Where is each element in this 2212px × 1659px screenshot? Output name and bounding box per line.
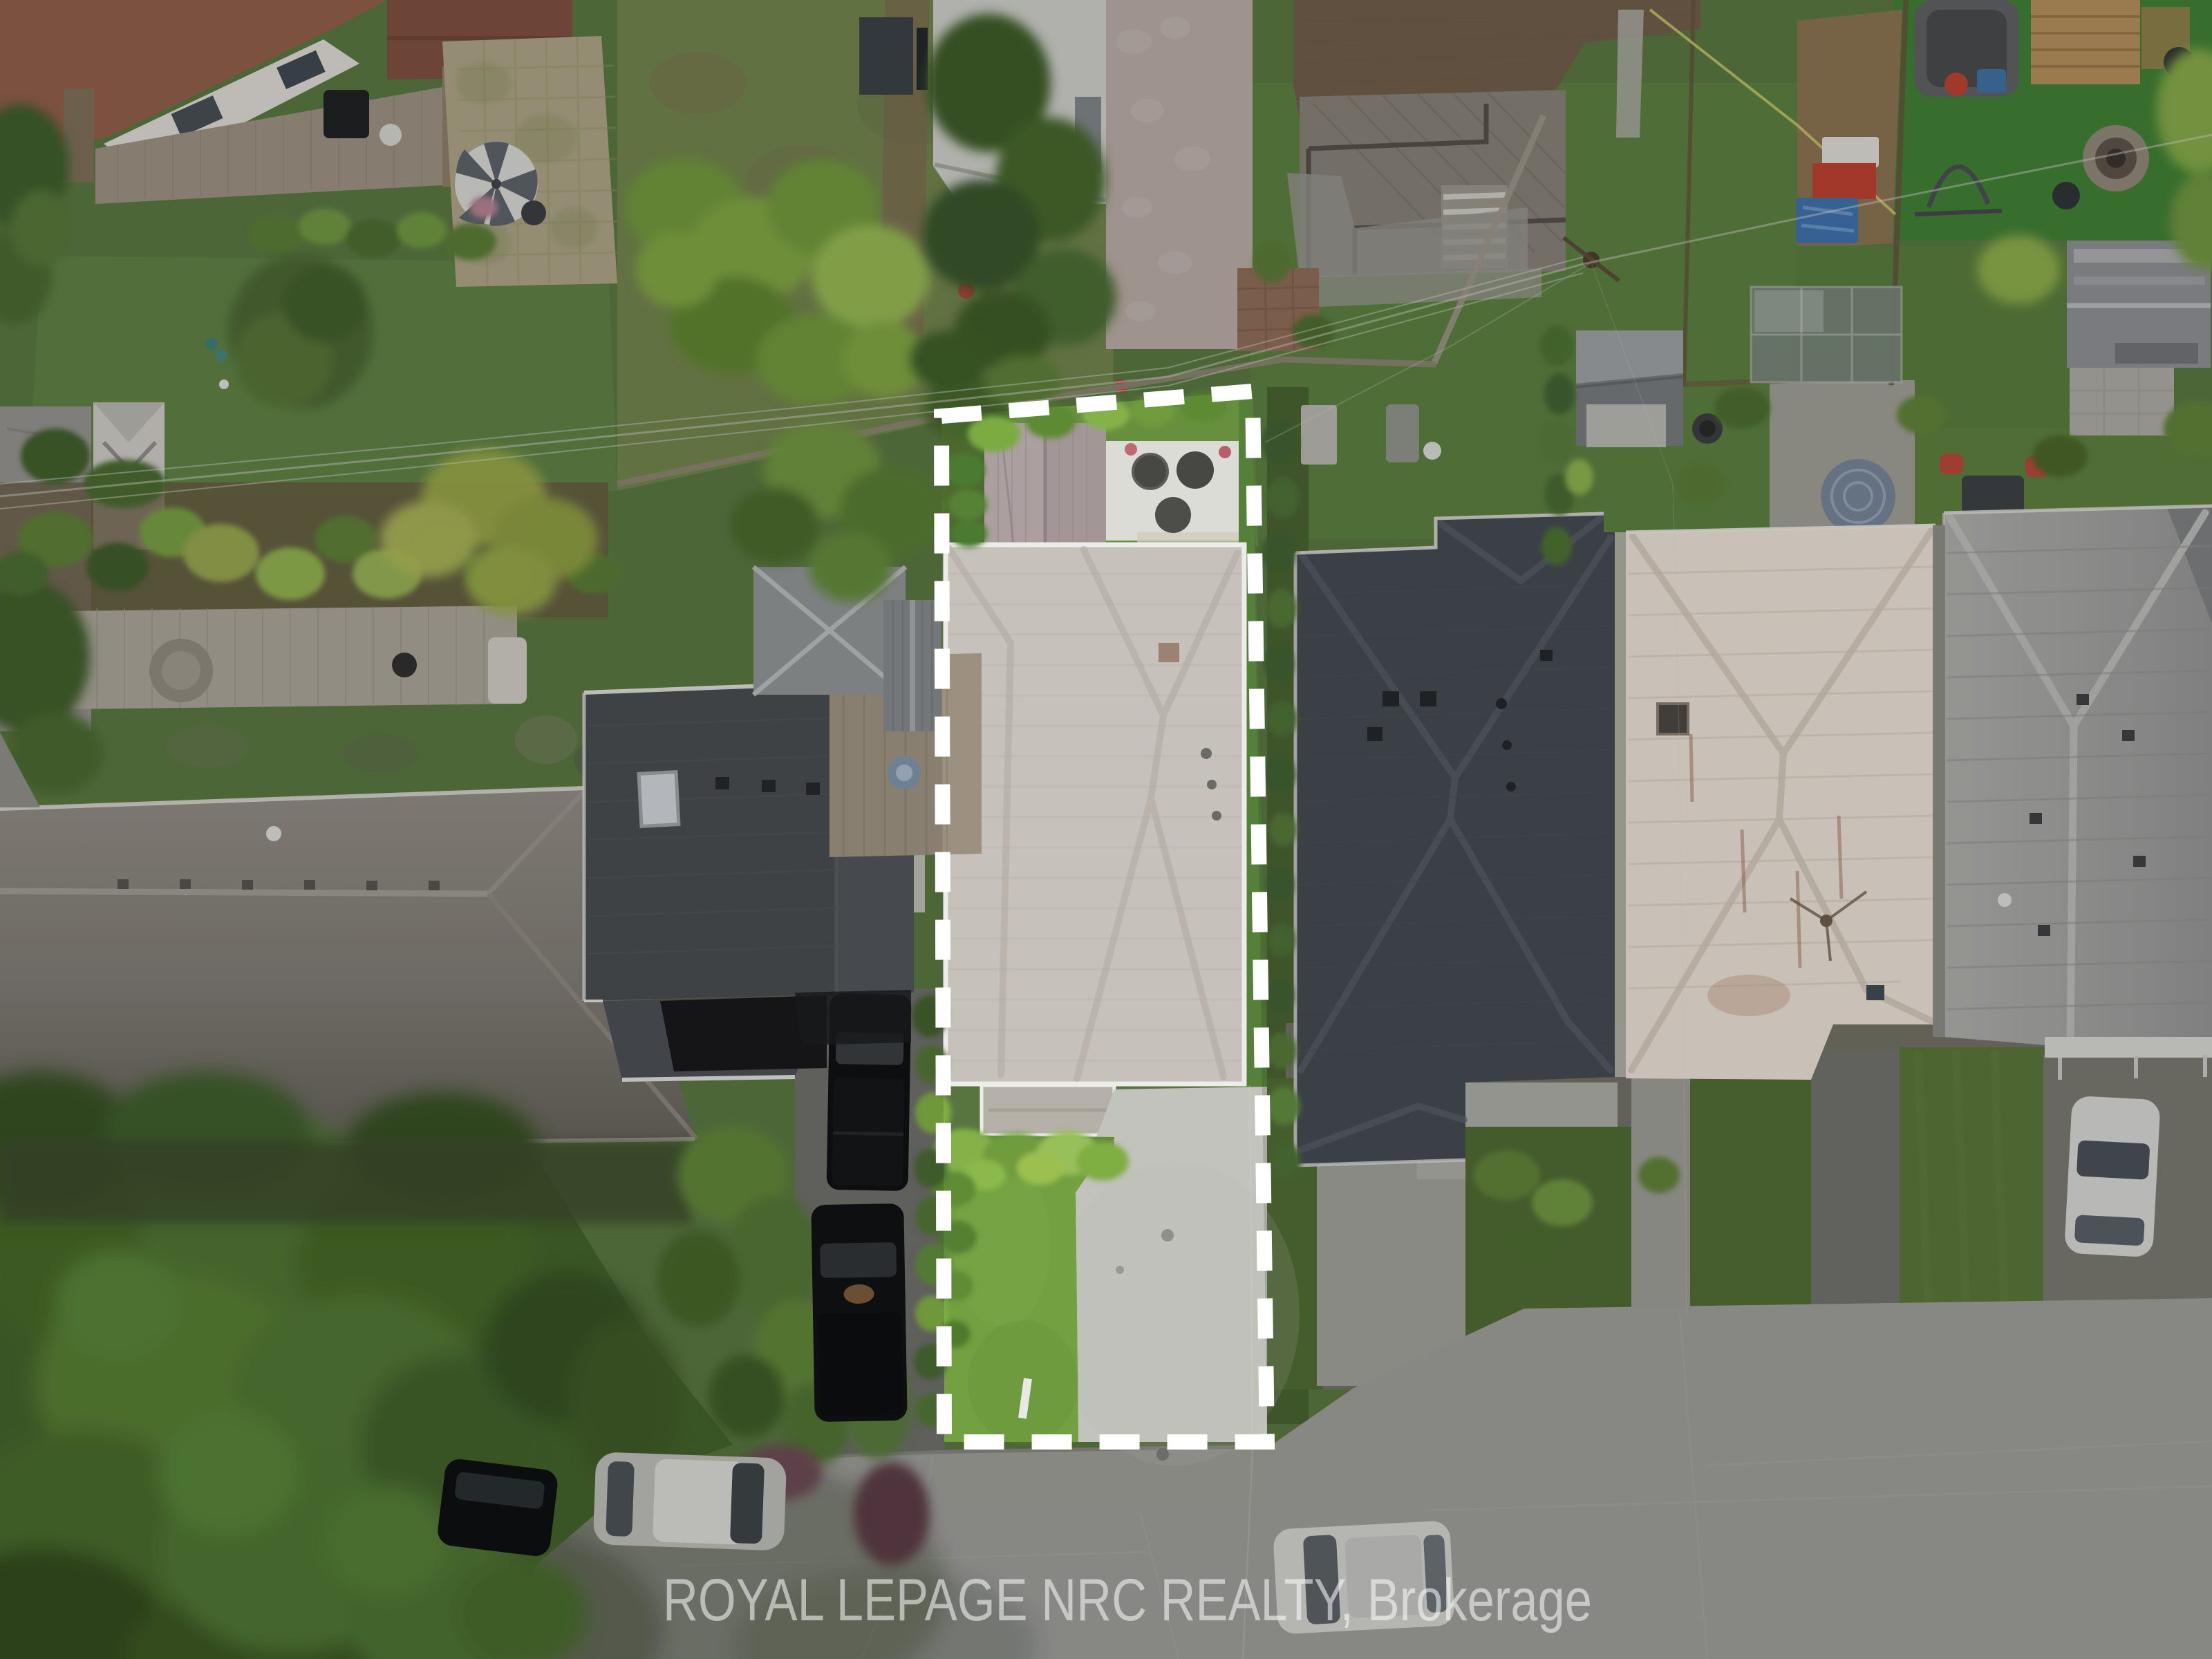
svg-text:ROYAL LEPAGE NRC REALTY, Broke: ROYAL LEPAGE NRC REALTY, Brokerage bbox=[663, 1567, 1592, 1633]
